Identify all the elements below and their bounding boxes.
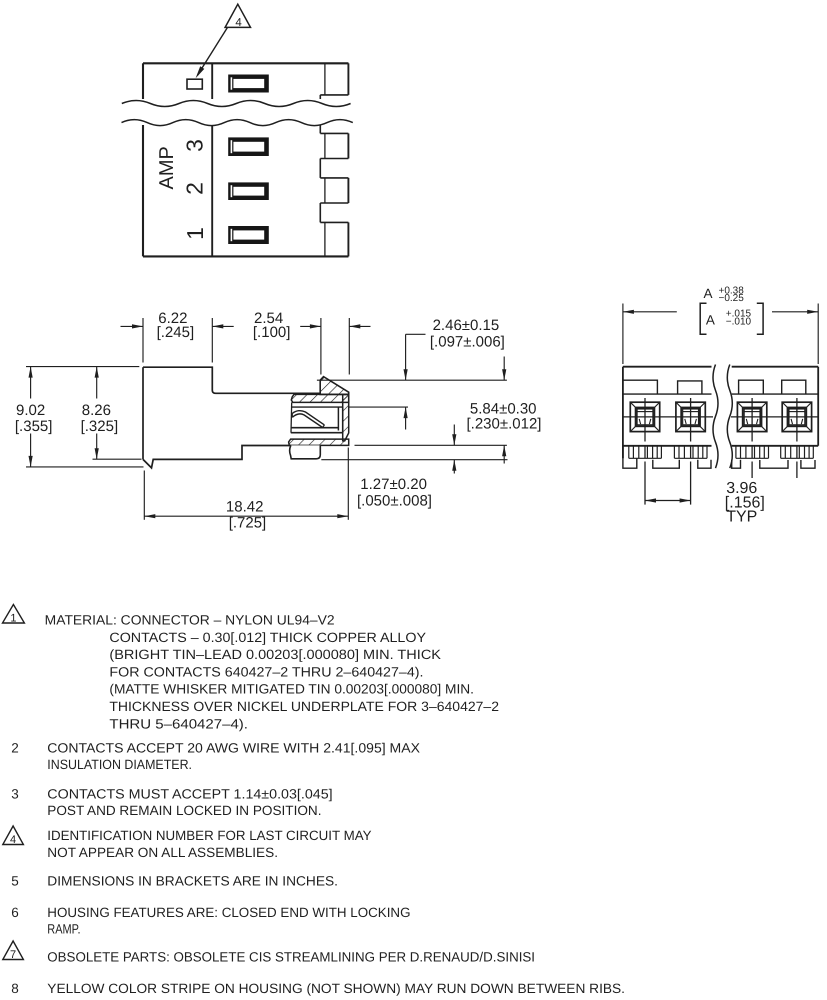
svg-text:2: 2 bbox=[11, 740, 19, 755]
svg-text:1: 1 bbox=[182, 227, 208, 240]
svg-text:1.27±0.20: 1.27±0.20 bbox=[360, 476, 427, 493]
svg-text:[.097±.006]: [.097±.006] bbox=[430, 334, 505, 351]
svg-text:IDENTIFICATION NUMBER FOR L: IDENTIFICATION NUMBER FOR LAST CIRCUIT M… bbox=[47, 828, 371, 843]
svg-text:NOT APPEAR ON ALL ASSEMBLI: NOT APPEAR ON ALL ASSEMBLIES. bbox=[47, 845, 278, 860]
svg-text:[.230±.012]: [.230±.012] bbox=[467, 416, 542, 433]
svg-text:4: 4 bbox=[235, 17, 242, 29]
svg-text:[.245]: [.245] bbox=[157, 324, 195, 341]
svg-text:[.355]: [.355] bbox=[15, 418, 53, 435]
svg-text:CONTACTS MUST ACCEPT 1.14±0: CONTACTS MUST ACCEPT 1.14±0.03[.045] bbox=[47, 787, 332, 802]
svg-text:3: 3 bbox=[182, 139, 208, 152]
svg-text:A: A bbox=[704, 286, 713, 301]
svg-text:18.42: 18.42 bbox=[226, 498, 264, 515]
svg-text:CONTACTS – 0.30[.012] THICK: CONTACTS – 0.30[.012] THICK COPPER ALLOY bbox=[109, 630, 426, 645]
svg-text:7: 7 bbox=[10, 949, 16, 961]
svg-text:INSULATION DIAMETER.: INSULATION DIAMETER. bbox=[47, 757, 192, 772]
svg-text:−.010: −.010 bbox=[726, 316, 752, 327]
svg-text:THICKNESS OVER NICKEL UNDER: THICKNESS OVER NICKEL UNDERPLATE FOR 3–6… bbox=[109, 699, 499, 714]
svg-text:1: 1 bbox=[10, 613, 16, 625]
svg-text:4: 4 bbox=[10, 834, 16, 846]
svg-text:DIMENSIONS IN BRACKETS ARE: DIMENSIONS IN BRACKETS ARE IN INCHES. bbox=[47, 874, 338, 889]
svg-text:THRU 5–640427–4).: THRU 5–640427–4). bbox=[109, 716, 248, 731]
svg-text:2.46±0.15: 2.46±0.15 bbox=[433, 317, 500, 334]
svg-text:9.02: 9.02 bbox=[16, 402, 45, 419]
svg-text:6: 6 bbox=[11, 905, 19, 920]
svg-text:[.725]: [.725] bbox=[229, 515, 267, 532]
svg-text:[.100]: [.100] bbox=[253, 324, 291, 341]
svg-text:YELLOW COLOR STRIPE ON HOU: YELLOW COLOR STRIPE ON HOUSING (NOT SHOW… bbox=[47, 981, 625, 996]
svg-text:[.050±.008]: [.050±.008] bbox=[357, 492, 432, 509]
svg-text:8.26: 8.26 bbox=[82, 402, 111, 419]
svg-text:5: 5 bbox=[11, 874, 19, 889]
svg-text:FOR CONTACTS 640427–2 THRU: FOR CONTACTS 640427–2 THRU 2–640427–4). bbox=[109, 664, 423, 679]
svg-text:OBSOLETE PARTS: OBSOLETE CI: OBSOLETE PARTS: OBSOLETE CIS STREAMLININ… bbox=[47, 949, 535, 964]
svg-text:RAMP.: RAMP. bbox=[47, 922, 80, 937]
svg-text:[.325]: [.325] bbox=[81, 418, 119, 435]
svg-text:MATERIAL: CONNECTOR – NYLON: MATERIAL: CONNECTOR – NYLON UL94–V2 bbox=[45, 613, 335, 628]
svg-text:(MATTE WHISKER MITIGATED TI: (MATTE WHISKER MITIGATED TIN 0.00203[.00… bbox=[109, 682, 474, 697]
svg-text:POST AND REMAIN LOCKED IN: POST AND REMAIN LOCKED IN POSITION. bbox=[47, 803, 321, 818]
svg-text:8: 8 bbox=[11, 981, 19, 996]
svg-text:AMP: AMP bbox=[156, 146, 178, 189]
svg-text:2: 2 bbox=[182, 182, 208, 195]
svg-text:3: 3 bbox=[11, 787, 19, 802]
svg-text:A: A bbox=[706, 313, 715, 328]
svg-text:CONTACTS ACCEPT 20 AWG WIR: CONTACTS ACCEPT 20 AWG WIRE WITH 2.41[.0… bbox=[47, 740, 420, 755]
svg-text:−0.25: −0.25 bbox=[719, 293, 745, 304]
svg-text:HOUSING FEATURES ARE: CLOSE: HOUSING FEATURES ARE: CLOSED END WITH LO… bbox=[47, 905, 410, 920]
svg-text:(BRIGHT TIN–LEAD 0.00203[.00: (BRIGHT TIN–LEAD 0.00203[.000080] MIN. T… bbox=[109, 647, 441, 662]
svg-text:TYP: TYP bbox=[726, 508, 757, 525]
